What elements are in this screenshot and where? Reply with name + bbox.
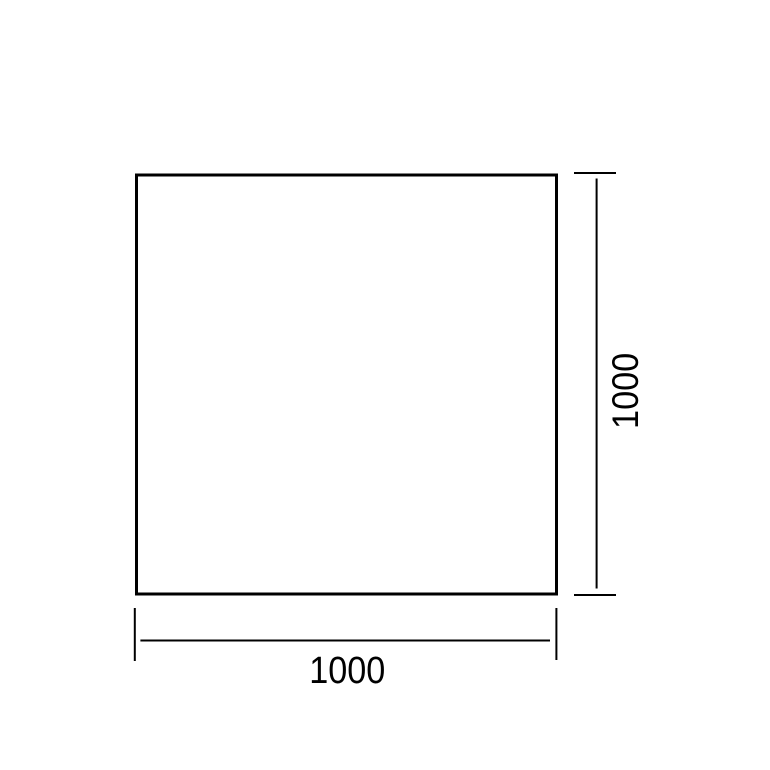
svg-text:1000: 1000 — [309, 649, 385, 692]
svg-text:1000: 1000 — [605, 353, 647, 429]
